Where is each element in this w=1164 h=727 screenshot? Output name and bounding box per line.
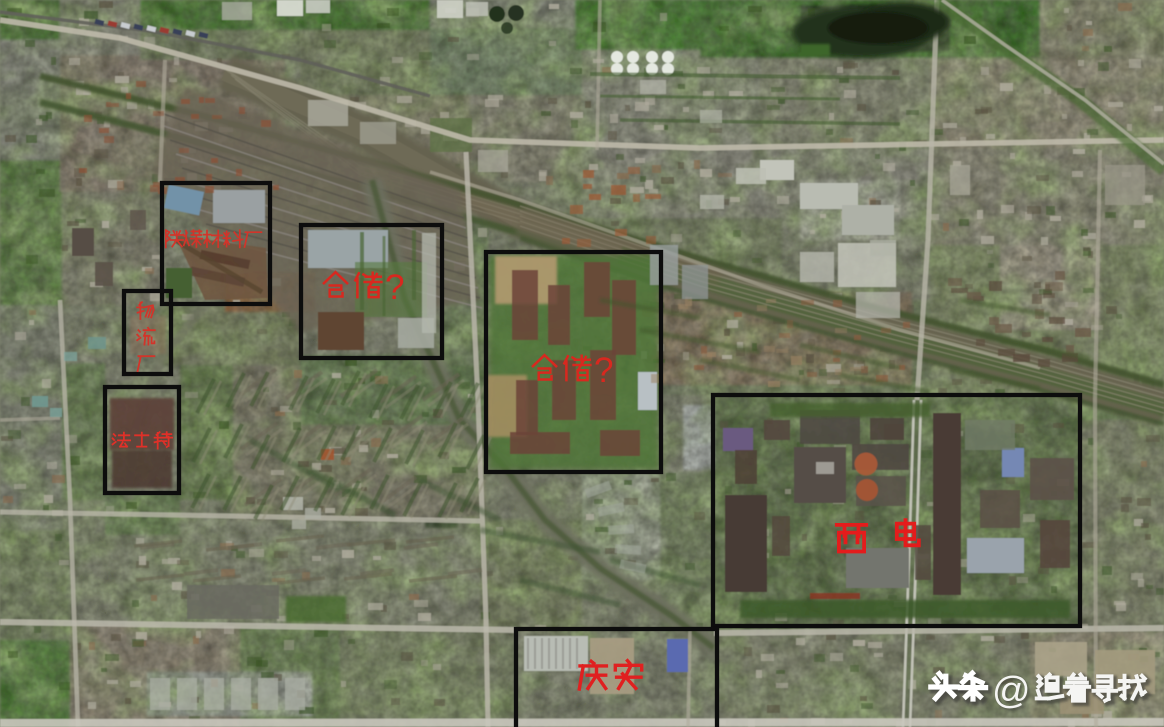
svg-text:?: ? xyxy=(594,351,613,390)
svg-text:@: @ xyxy=(992,670,1031,712)
svg-text:?: ? xyxy=(385,268,404,307)
